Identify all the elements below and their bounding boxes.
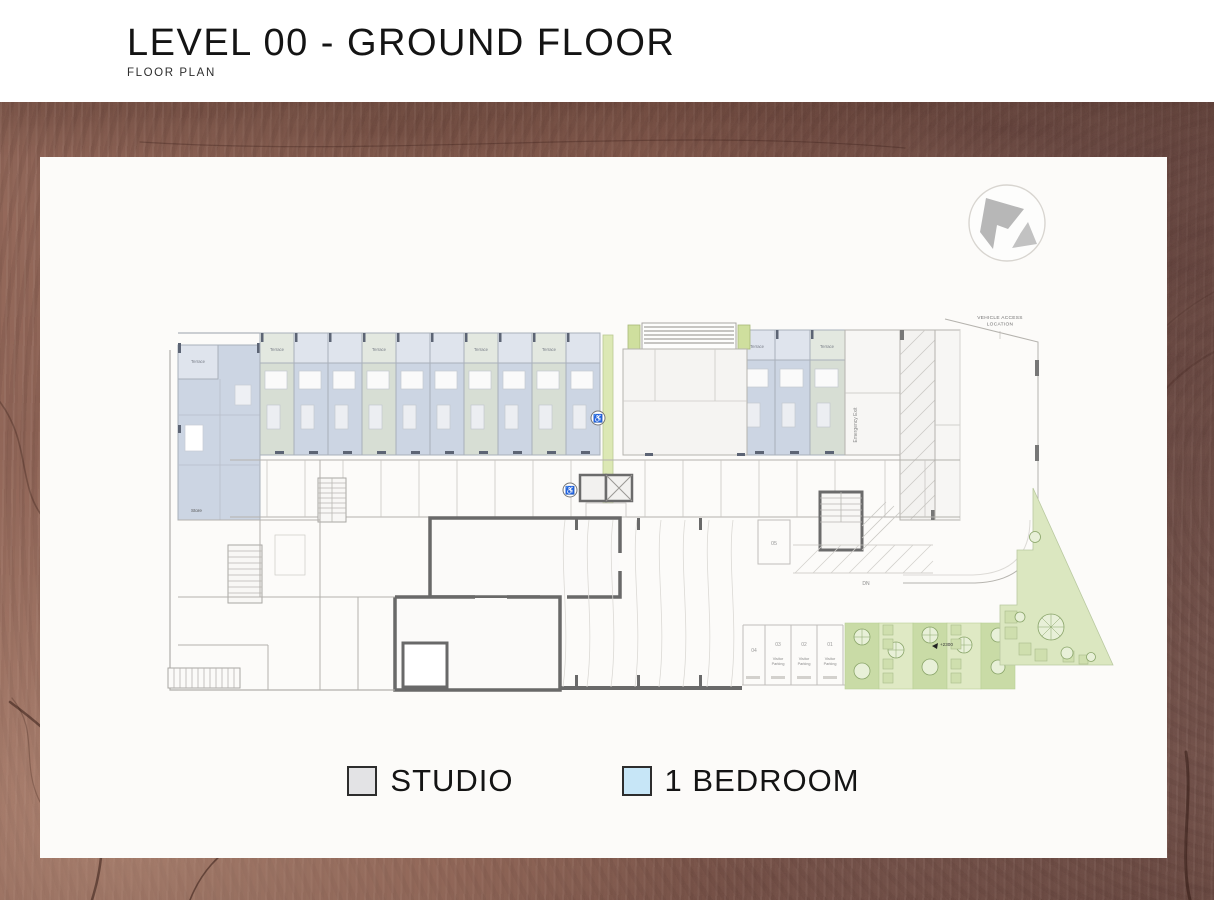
- legend-item-studio: STUDIO: [347, 763, 513, 799]
- wheelchair-accessible-icon: ♿: [591, 411, 605, 425]
- floor-plan: Terrace Store Terrace Terr: [145, 305, 1125, 705]
- stair-southwest: [228, 545, 262, 603]
- stair-west: [318, 478, 346, 522]
- legend-item-1bedroom: 1 BEDROOM: [622, 763, 860, 799]
- parking-stall-number: 01: [827, 642, 833, 648]
- north-arrow-icon: [965, 181, 1049, 265]
- corner-garden: [1000, 488, 1113, 665]
- terrace-label: Terrace: [820, 344, 835, 349]
- one-bedroom-label: 1 BEDROOM: [665, 763, 860, 799]
- right-unit-block: Terrace Terrace: [740, 330, 845, 455]
- terrace-label: Terrace: [750, 344, 765, 349]
- terrace-label: Terrace: [191, 359, 206, 364]
- floor-plan-card: Terrace Store Terrace Terr: [40, 157, 1167, 858]
- entry-ramp: [168, 668, 240, 688]
- page-header: LEVEL 00 - GROUND FLOOR FLOOR PLAN: [127, 24, 675, 79]
- unit-band: Terrace Terrace Terrace Terrace: [260, 333, 600, 455]
- ground-floor-rooms: [395, 518, 620, 690]
- emergency-exit-label: Emergency Exit: [853, 407, 859, 443]
- terrace-label: Terrace: [474, 347, 489, 352]
- wheelchair-accessible-icon: ♿: [563, 483, 577, 497]
- one-bedroom-swatch: [622, 766, 652, 796]
- dn-label: DN: [862, 581, 870, 587]
- parking-stall-number: 03: [775, 642, 781, 648]
- visitor-parking-label: Visitor: [799, 657, 810, 661]
- studio-swatch: [347, 766, 377, 796]
- parking-stall-number: 04: [751, 648, 757, 654]
- page-subtitle: FLOOR PLAN: [127, 67, 675, 79]
- vehicle-access-label: VEHICLE ACCESS: [977, 315, 1023, 321]
- parking-stall-number: 05: [771, 541, 777, 547]
- visitor-parking-label: Visitor: [773, 657, 784, 661]
- page-title: LEVEL 00 - GROUND FLOOR: [127, 24, 675, 64]
- presentation-page: { "header": { "title": "LEVEL 00 - GROUN…: [0, 0, 1214, 900]
- terrace-label: Terrace: [270, 347, 285, 352]
- store-label: Store: [191, 508, 202, 513]
- visitor-parking-label: Parking: [824, 662, 837, 666]
- left-wing-unit: Terrace Store: [178, 343, 260, 520]
- level-marker: +2300: [940, 642, 953, 647]
- garden-strip: +2300: [845, 623, 1015, 689]
- visitor-parking-label: Parking: [772, 662, 785, 666]
- studio-label: STUDIO: [390, 763, 513, 799]
- legend: STUDIO 1 BEDROOM: [40, 763, 1167, 799]
- terrace-label: Terrace: [542, 347, 557, 352]
- terrace-label: Terrace: [372, 347, 387, 352]
- visitor-parking-label: Parking: [798, 662, 811, 666]
- svg-text:♿: ♿: [565, 485, 575, 495]
- stair-east: [820, 492, 900, 550]
- elevator-core: [580, 475, 632, 517]
- svg-text:♿: ♿: [593, 413, 603, 423]
- vehicle-access-label: LOCATION: [987, 322, 1014, 328]
- visitor-parking-label: Visitor: [825, 657, 836, 661]
- parking-stall-number: 02: [801, 642, 807, 648]
